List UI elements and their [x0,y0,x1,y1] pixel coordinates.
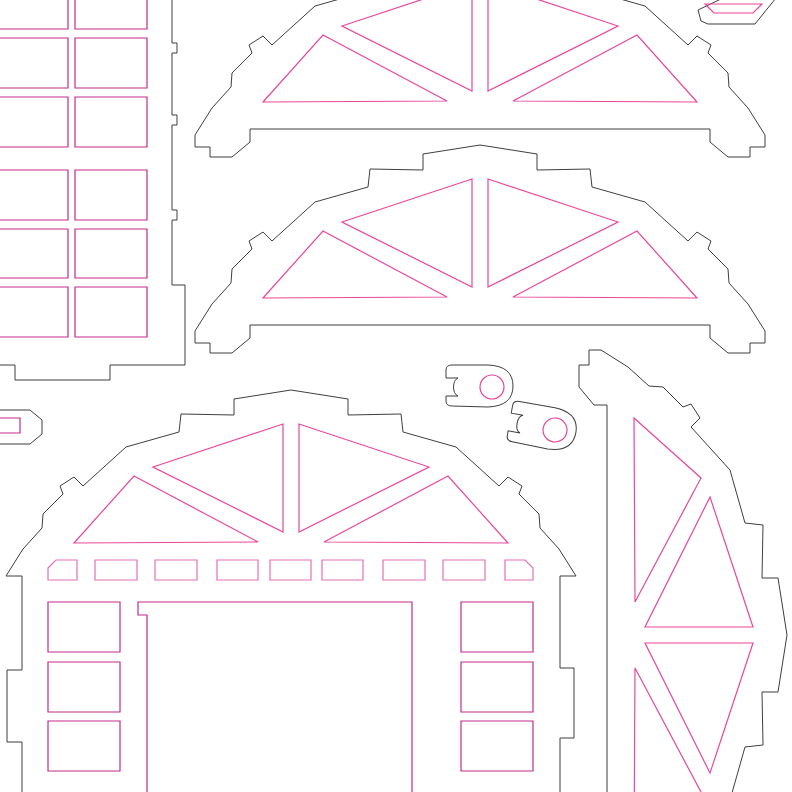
truss-full-use [195,145,765,353]
engrave-line [0,97,68,147]
truss-full-use [195,0,765,157]
truss-middle [195,145,765,353]
engrave-line [0,418,20,433]
engrave-line [0,0,68,29]
clip-a [446,365,513,407]
engrave-line [138,602,412,792]
cut-line [0,0,185,380]
engrave-line [461,721,533,771]
engrave-line [75,97,147,147]
engrave-line [48,721,120,771]
barn-front [6,390,576,792]
engrave-line [705,4,762,13]
truss-top [195,0,765,157]
engrave-line [75,0,147,29]
clip-shape-use [446,365,513,407]
engrave-line [48,662,120,712]
laser-cut-sheet [0,0,792,792]
clip-b [506,400,579,453]
engrave-line [48,560,77,580]
engrave-line [505,560,533,580]
engrave-line [443,560,485,580]
axle-tab-strip [0,410,42,444]
engrave-line [0,38,68,88]
engrave-line [75,287,147,337]
corner-piece [698,0,776,24]
engrave-line [95,560,137,580]
truss-side-rotated [579,350,787,792]
clip-shape-use [506,400,579,453]
truss-tris-use [74,424,508,543]
engrave-line [0,287,68,337]
engrave-line [322,560,363,580]
engrave-line [48,602,120,652]
engrave-line [383,560,425,580]
engrave-line [155,560,197,580]
wall-panel [0,0,185,380]
cut-sheet [0,0,792,792]
truss-full-use [579,350,787,792]
engrave-line [461,662,533,712]
engrave-line [217,560,258,580]
cut-line [6,390,576,792]
engrave-line [270,560,311,580]
engrave-line [461,602,533,652]
cut-line [0,410,42,444]
engrave-line [0,229,68,278]
engrave-line [75,170,147,220]
engrave-line [75,229,147,278]
engrave-line [0,170,68,220]
engrave-line [75,38,147,88]
